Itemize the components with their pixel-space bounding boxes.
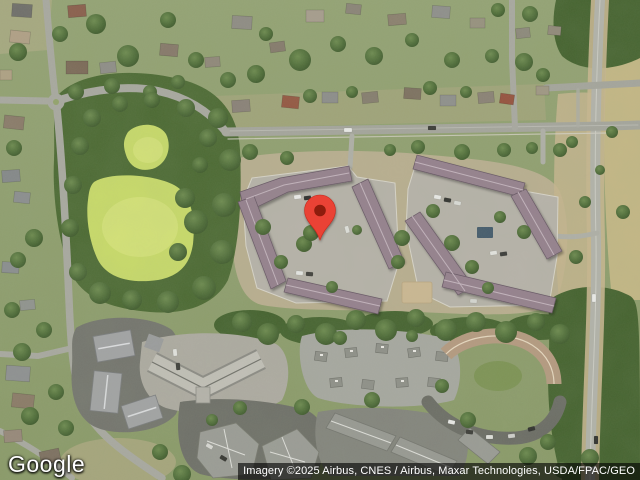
pin-inner-dot <box>314 205 326 217</box>
satellite-imagery <box>0 0 640 480</box>
map-canvas[interactable]: Google Imagery ©2025 Airbus, CNES / Airb… <box>0 0 640 480</box>
attribution-text: Imagery ©2025 Airbus, CNES / Airbus, Max… <box>243 465 635 477</box>
google-logo[interactable]: Google <box>8 451 85 478</box>
attribution-bar: Imagery ©2025 Airbus, CNES / Airbus, Max… <box>238 463 640 480</box>
